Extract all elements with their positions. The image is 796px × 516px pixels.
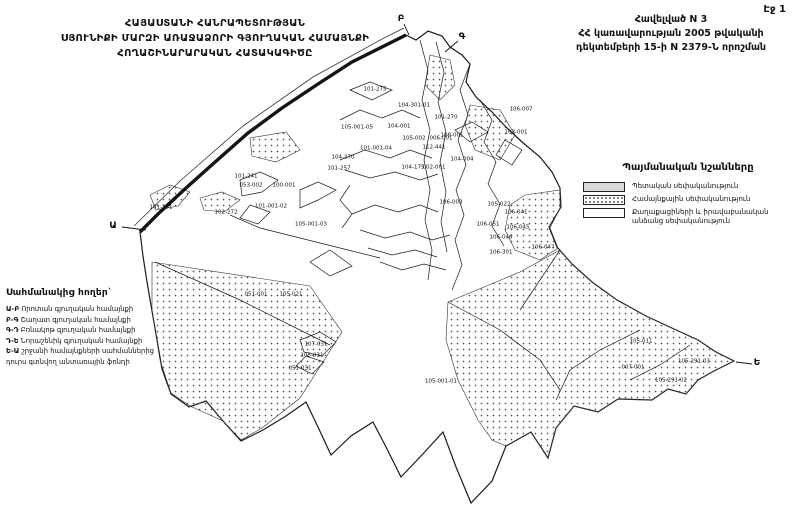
adjacent-land-label: Բռնակոթ գյուղական համայնքի <box>21 326 136 334</box>
adjacent-land-item: Ե-Աշրջանի համայնքների սահմաններից <box>6 346 191 357</box>
parcel-code-label: 106-007 <box>510 107 533 113</box>
parcel-code-label: 106-045 <box>507 225 530 231</box>
legend-item-label: Պետական սեփականություն <box>632 182 738 191</box>
boundary-segment-code: Ե-Ա <box>6 347 19 355</box>
legend-item-label: Համայնքային սեփականություն <box>632 195 750 204</box>
legend-item: Համայնքային սեփականություն <box>583 195 793 205</box>
parcel-code-label: 101-251 <box>150 205 173 211</box>
legend-items: Պետական սեփականությունՀամայնքային սեփակա… <box>583 182 793 226</box>
parcel-code-label: 102-272 <box>215 210 238 216</box>
adjacent-land-label: շրջանի համայնքների սահմաններից <box>21 347 154 355</box>
parcel-code-label: 101-275 <box>364 87 387 93</box>
parcel-code-label: 106-301 <box>490 250 513 256</box>
adjacent-land-label: Շաղատ գյուղական համայնքի <box>21 316 131 324</box>
parcel-code-label: 106-041 <box>505 210 528 216</box>
parcel-code-label: 105-011 <box>630 339 653 345</box>
parcel-code-label: 105-022 <box>488 202 511 208</box>
plan-sheet: Էջ 1 ՀԱՅԱՍՏԱՆԻ ՀԱՆՐԱՊԵՏՈՒԹՅԱՆ ՍՅՈՒՆԻՔԻ Մ… <box>0 0 796 516</box>
adjacent-land-label: Նորաշենիկ գյուղական համայնքի <box>21 337 143 345</box>
parcel-code-label: 105-001-01 <box>425 379 457 385</box>
legend-item: Պետական սեփականություն <box>583 182 793 192</box>
parcel-code-label: 107-031 <box>305 342 328 348</box>
legend-item-label: Քաղաքացիների և իրավաբանական անձանց սեփակ… <box>632 208 793 226</box>
parcel-code-label: 101-001-02 <box>255 204 287 210</box>
legend-swatch-dotted <box>583 195 625 205</box>
parcel-code-label: 104-004 <box>451 157 474 163</box>
parcel-code-label: 007-001 <box>622 365 645 371</box>
parcel-code-label: 101-257 <box>328 166 351 172</box>
parcel-code-label: 105-291-02 <box>655 378 687 384</box>
parcel-code-label: 105-021 <box>280 292 303 298</box>
parcel-code-label: 101-001-04 <box>360 146 392 152</box>
parcel-code-label: 100-001 <box>273 183 296 189</box>
parcel-code-label: 051-031 <box>289 366 312 372</box>
legend-swatch-white <box>583 208 625 218</box>
adjacent-land-item: Ա-ԲՈրոտան գյուղական համայնքի <box>6 304 191 315</box>
legend-swatch-solid-gray <box>583 182 625 192</box>
legend: Պայմանական նշանները Պետական սեփականությո… <box>583 162 793 229</box>
boundary-letter: Ե <box>754 358 761 368</box>
adjacent-land-item: Բ-ԳՇաղատ գյուղական համայնքի <box>6 315 191 326</box>
adjacent-lands-items: Ա-ԲՈրոտան գյուղական համայնքիԲ-ԳՇաղատ գյո… <box>6 304 191 367</box>
boundary-letter: Ա <box>109 221 116 231</box>
parcel-code-label: 103-001 <box>505 130 528 136</box>
parcel-code-label: 105-291-03 <box>678 359 710 365</box>
parcel-code-label: 104-001 <box>388 124 411 130</box>
parcel-code-label: 101-241 <box>235 174 258 180</box>
parcel-code-label: 108-001 <box>441 133 464 139</box>
boundary-letter: Գ <box>459 32 466 42</box>
boundary-segment-code: Ա-Բ <box>6 305 19 313</box>
parcel-code-label: 104-301-01 <box>398 103 430 109</box>
parcel-code-label: 101-270 <box>435 115 458 121</box>
legend-item: Քաղաքացիների և իրավաբանական անձանց սեփակ… <box>583 208 793 226</box>
adjacent-lands-title: Սահմանակից հողեր` <box>6 288 191 298</box>
boundary-segment-code: Գ-Դ <box>6 326 19 334</box>
adjacent-land-label: դուրս գտնվող անտառային ֆոնդի <box>6 358 130 366</box>
boundary-segment-code: Բ-Գ <box>6 316 19 324</box>
parcel-code-label: 105-001-05 <box>341 125 373 131</box>
adjacent-land-item: Գ-ԴԲռնակոթ գյուղական համայնքի <box>6 325 191 336</box>
parcel-code-label: 053-002 <box>240 183 263 189</box>
parcel-code-label: 105-002 <box>403 136 426 142</box>
boundary-segment-code: Դ-Ե <box>6 337 19 345</box>
parcel-code-label: 105-031 <box>301 353 324 359</box>
adjacent-land-item: Դ-ԵՆորաշենիկ գյուղական համայնքի <box>6 336 191 347</box>
parcel-code-label: 105-001-03 <box>295 222 327 228</box>
boundary-letter: Բ <box>398 14 405 24</box>
parcel-code-label: 002-001 <box>423 165 446 171</box>
parcel-code-label: 112-441 <box>423 145 446 151</box>
parcel-code-label: 051-001 <box>245 292 268 298</box>
parcel-code-label: 104-175 <box>402 165 425 171</box>
community-boundary <box>140 31 734 503</box>
parcel-code-label: 106-051 <box>477 222 500 228</box>
parcel-code-label: 106-003 <box>440 200 463 206</box>
legend-title: Պայմանական նշանները <box>583 162 793 173</box>
parcel-code-label: 106-046 <box>490 235 513 241</box>
adjacent-lands: Սահմանակից հողեր` Ա-ԲՈրոտան գյուղական հա… <box>6 288 191 367</box>
parcel-code-label: 104-270 <box>332 155 355 161</box>
cadastral-map <box>0 0 796 516</box>
adjacent-land-label: Որոտան գյուղական համայնքի <box>21 305 133 313</box>
parcel-code-label: 106-047 <box>532 245 555 251</box>
adjacent-land-item: դուրս գտնվող անտառային ֆոնդի <box>6 357 191 368</box>
